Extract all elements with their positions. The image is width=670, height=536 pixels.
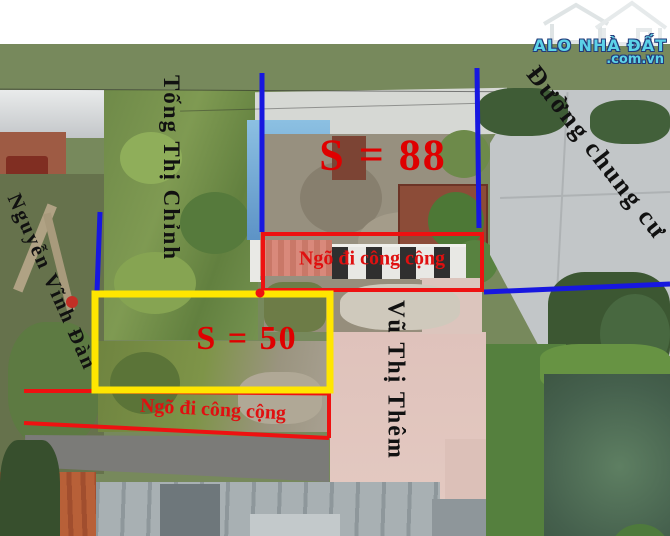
annotated-aerial-photo: Tống Thị Chỉnh Nguyễn Vĩnh Đàn Đường chu… [0,0,670,536]
area-label-highlight-plot: S = 50 [196,320,297,358]
area-label-top-plot: S = 88 [319,130,447,181]
logo-site-domain: .com.vn [606,52,664,67]
blue-boundary-horizontal [484,284,670,292]
red-corner-dot [256,289,265,298]
alley-label-top: Ngõ đi công cộng [299,248,445,271]
owner-label-vu-thi-them: Vũ Thị Thêm [382,300,409,460]
owner-label-tong-thi-chinh: Tống Thị Chỉnh [158,75,184,261]
blue-boundary-small [97,212,100,292]
red-bottom-alley-bottom-edge [24,423,329,438]
blue-boundary-right [477,68,479,228]
